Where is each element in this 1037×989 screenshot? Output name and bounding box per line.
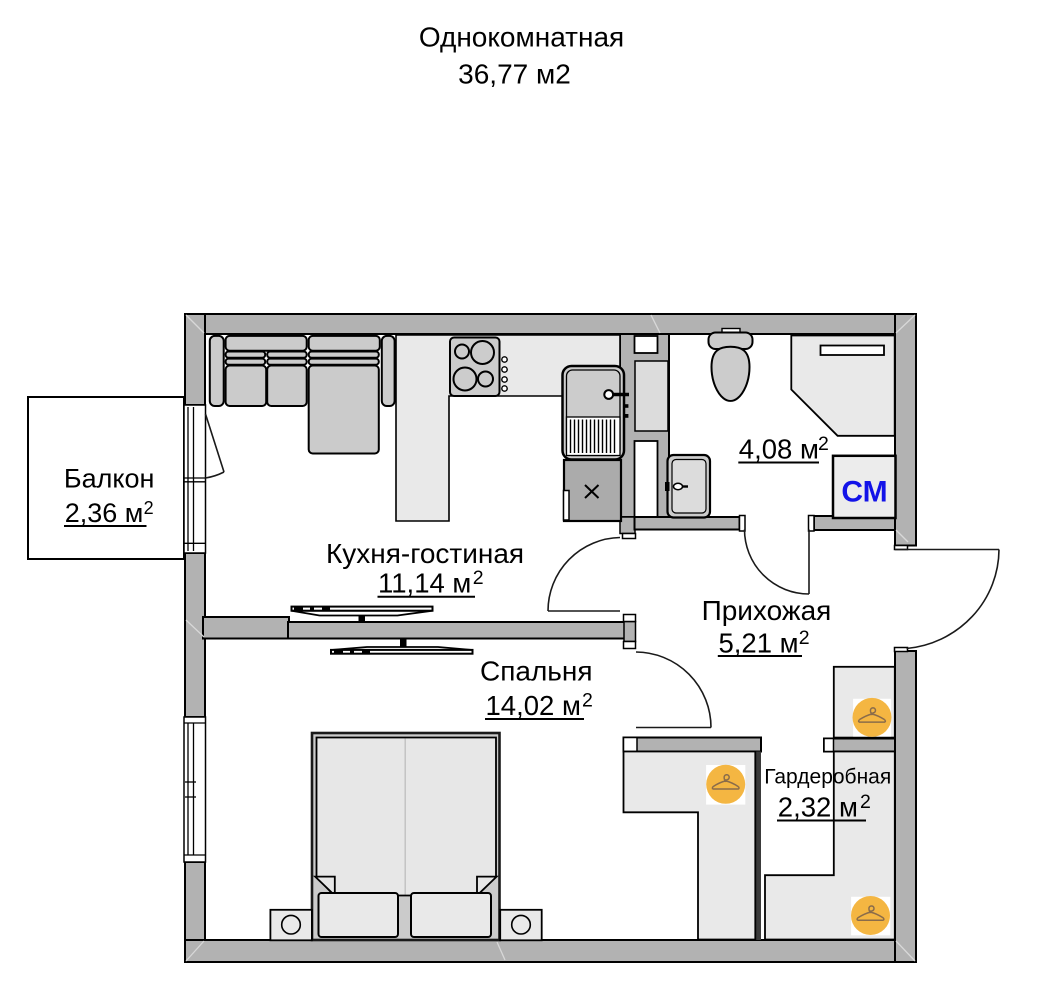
svg-text:4,08 м: 4,08 м [739, 434, 819, 465]
svg-text:Спальня: Спальня [480, 656, 593, 687]
svg-text:Прихожая: Прихожая [702, 595, 832, 626]
svg-text:2,32 м: 2,32 м [778, 792, 858, 823]
svg-text:СМ: СМ [841, 476, 887, 509]
svg-text:2: 2 [799, 627, 810, 649]
svg-text:5,21 м: 5,21 м [719, 628, 799, 659]
svg-text:Балкон: Балкон [64, 464, 155, 494]
svg-text:2: 2 [860, 791, 871, 813]
svg-text:36,77 м2: 36,77 м2 [458, 59, 571, 90]
svg-text:11,14 м: 11,14 м [378, 568, 471, 599]
svg-text:Однокомнатная: Однокомнатная [419, 22, 624, 53]
svg-text:2: 2 [144, 498, 154, 518]
svg-text:Гардеробная: Гардеробная [764, 766, 891, 789]
svg-text:2: 2 [818, 433, 829, 455]
svg-text:2: 2 [473, 567, 484, 589]
svg-text:2,36 м: 2,36 м [65, 498, 144, 528]
svg-text:Кухня-гостиная: Кухня-гостиная [326, 538, 524, 569]
svg-text:2: 2 [582, 690, 593, 712]
svg-text:14,02 м: 14,02 м [486, 690, 581, 721]
